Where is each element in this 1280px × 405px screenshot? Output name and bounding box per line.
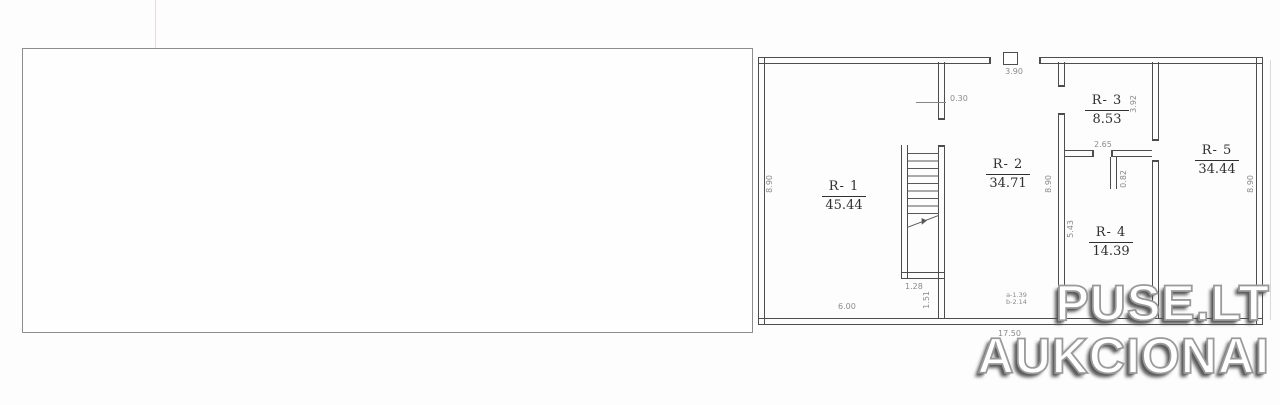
wall-cap (938, 118, 945, 120)
room-r3-label: R- 3 8.53 (1061, 93, 1153, 128)
room-r5-name: R- 5 (1195, 143, 1240, 161)
wall-cap (1058, 85, 1065, 87)
scan-artifact-line (155, 0, 156, 48)
dimension-right-height: 8.90 (1246, 175, 1255, 193)
outer-wall-left (758, 57, 765, 325)
stair-shaft-left-wall (901, 145, 908, 278)
room-r3-area: 8.53 (1061, 112, 1153, 128)
room-r1-label: R- 1 45.44 (798, 179, 890, 214)
wall-cap (1152, 160, 1159, 162)
wall-r2-r3-upper (1058, 62, 1065, 87)
room-r3-name: R- 3 (1085, 93, 1130, 111)
wall-r3-r5-upper (1152, 62, 1159, 141)
wall-cap (989, 57, 991, 64)
room-r4-name: R- 4 (1089, 225, 1134, 243)
chimney-pillar (1003, 52, 1018, 65)
room-r2-label: R- 2 34.71 (962, 157, 1054, 192)
room-r1-area: 45.44 (798, 198, 890, 214)
dimension-top-opening: 3.90 (988, 67, 1040, 76)
stair-shaft-bottom-wall (901, 272, 944, 279)
dimension-left-height: 8.90 (765, 175, 774, 193)
dimension-wall-offset: 0.30 (950, 94, 968, 103)
stair-direction-arrow-icon (919, 218, 927, 226)
watermark-puse-lt: PUSE.LT (1056, 278, 1270, 328)
outer-wall-top-left (758, 57, 990, 64)
dimension-r3-width: 2.65 (1094, 140, 1112, 149)
room-r2-name: R- 2 (986, 157, 1031, 175)
wall-r3-r4-left (1064, 150, 1094, 157)
dimension-r1-width: 6.00 (838, 302, 856, 311)
wall-r1-r2-upper (938, 62, 945, 120)
wall-cap (938, 145, 945, 147)
dimension-r2-door: a-1.39 b-2.14 (1006, 292, 1027, 306)
wall-r3-r4-right (1111, 150, 1152, 157)
wall-cap (1039, 57, 1041, 64)
stair-treads (908, 153, 939, 217)
dimension-stair-width: 1.28 (905, 282, 923, 291)
wall-cap (1111, 150, 1113, 157)
room-r5-label: R- 5 34.44 (1171, 143, 1263, 178)
dimension-stair-depth: 1.51 (922, 291, 931, 309)
dimension-tick (916, 102, 946, 103)
watermark-aukcionai: AUKCIONAI (978, 331, 1270, 381)
room-r4-label: R- 4 14.39 (1065, 225, 1157, 260)
room-r1-name: R- 1 (822, 179, 867, 197)
wall-cap (1092, 150, 1094, 157)
scan-artifact-edge (1270, 60, 1271, 320)
room-r2-area: 34.71 (962, 176, 1054, 192)
dimension-r4-door: 0.82 (1119, 170, 1128, 188)
wall-r1-r2-lower (938, 145, 945, 318)
dimension-r3-height: 3.92 (1129, 95, 1138, 113)
empty-sheet-frame (22, 48, 753, 333)
scanned-floorplan-page: { "watermark": { "line1": "PUSE.LT", "li… (0, 0, 1280, 405)
wall-stub-r4 (1110, 157, 1117, 189)
dimension-r4-height: 5.43 (1066, 220, 1075, 238)
wall-cap (1152, 139, 1159, 141)
dimension-mid-height: 8.90 (1044, 175, 1053, 193)
room-r4-area: 14.39 (1065, 244, 1157, 260)
dimension-r2-door-b: b-2.14 (1006, 299, 1027, 306)
